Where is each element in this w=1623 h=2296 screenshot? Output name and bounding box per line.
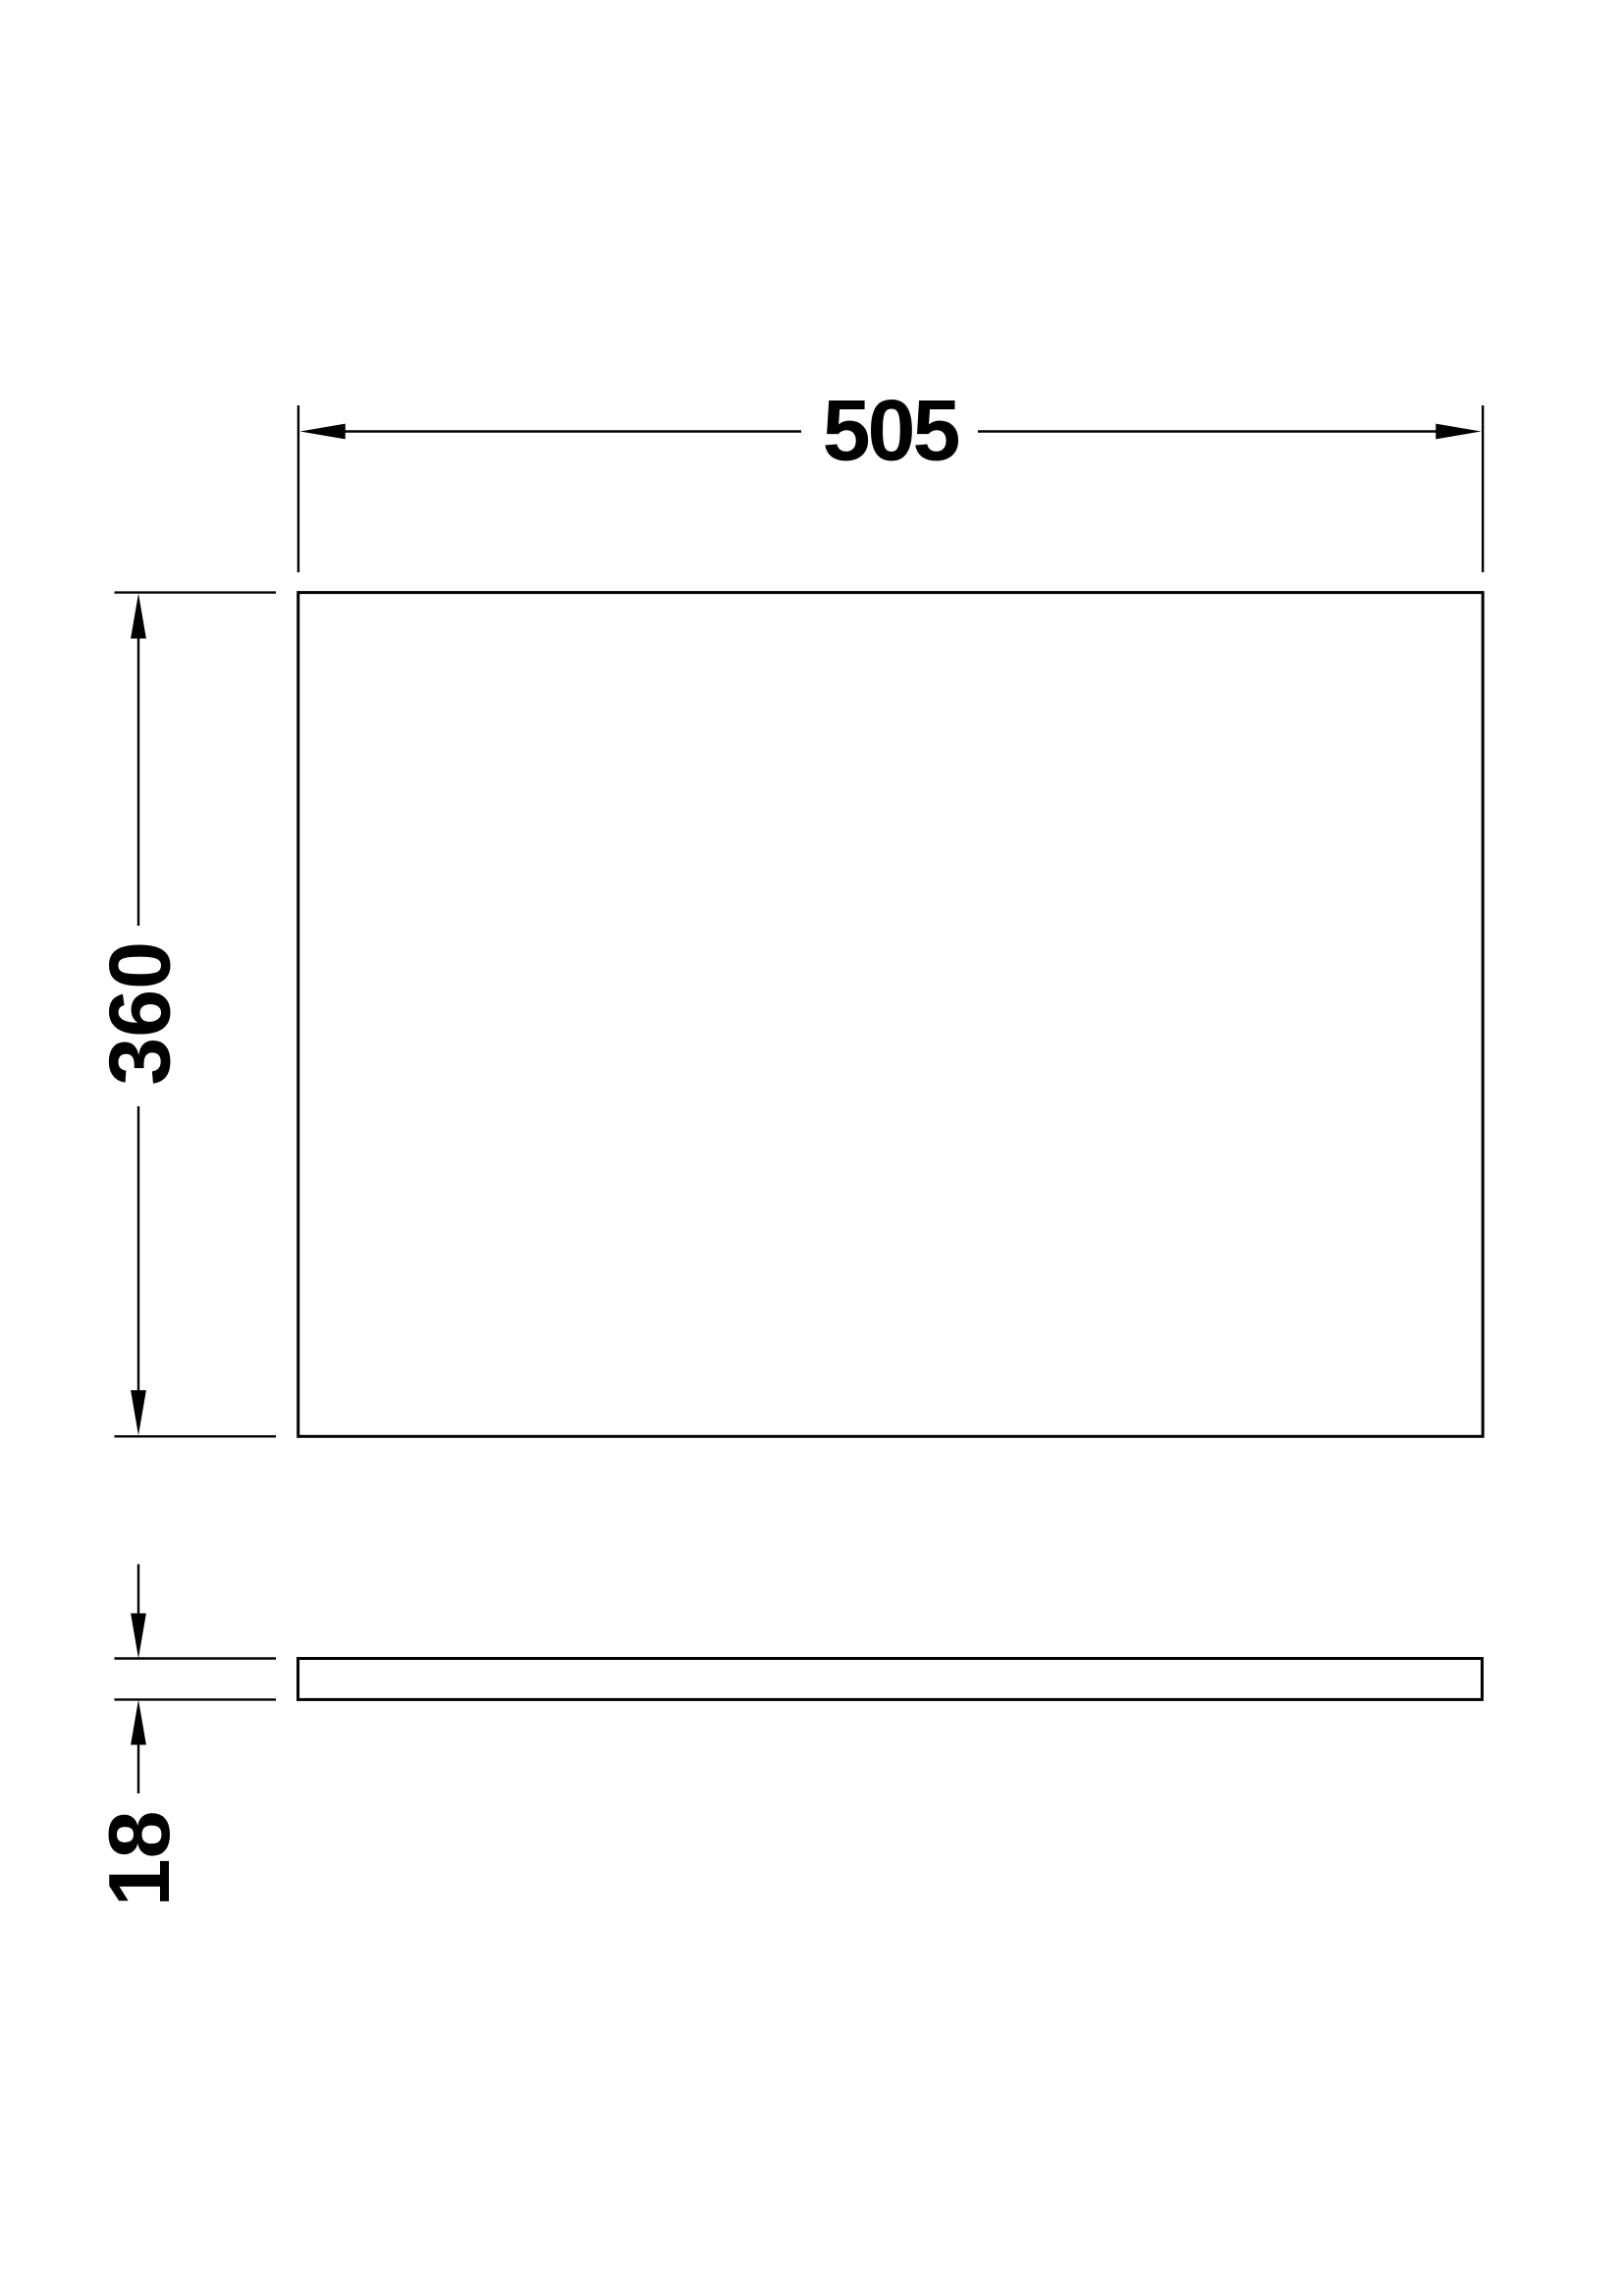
svg-text:360: 360 bbox=[91, 941, 189, 1086]
svg-text:18: 18 bbox=[90, 1810, 188, 1906]
svg-text:505: 505 bbox=[823, 382, 959, 479]
